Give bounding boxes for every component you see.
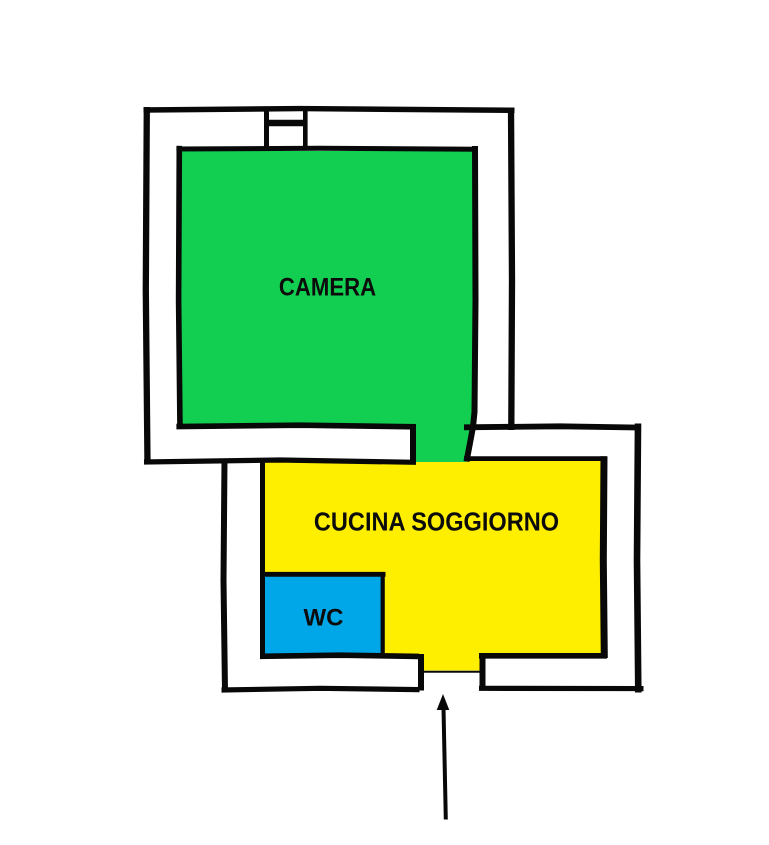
svg-text:WC: WC <box>304 604 344 631</box>
svg-text:CAMERA: CAMERA <box>279 273 376 302</box>
svg-text:CUCINA SOGGIORNO: CUCINA SOGGIORNO <box>314 507 559 536</box>
